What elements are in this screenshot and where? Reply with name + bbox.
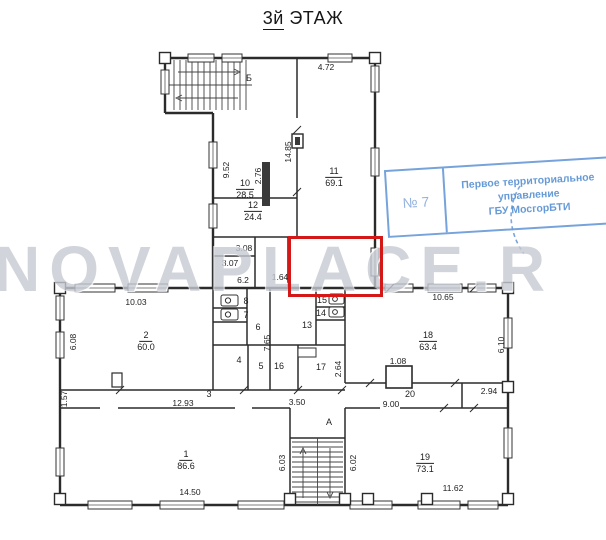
room-label-11: 1169.1: [325, 162, 343, 188]
bti-stamp: № 7 Первое территориальное управление ГБ…: [384, 156, 606, 238]
room-num: 12: [244, 201, 262, 212]
dimension-label: 1.57: [59, 391, 69, 408]
stamp-text: Первое территориальное управление ГБУ Мо…: [444, 158, 606, 232]
dimension-label: 9.52: [221, 162, 231, 179]
room-number-16: 16: [274, 361, 284, 371]
room-num: 10: [236, 179, 254, 190]
room-label-12: 1224.4: [244, 196, 262, 222]
room-area: 86.6: [177, 462, 195, 471]
dimension-label: 6.08: [68, 334, 78, 351]
floor-number: 3й: [263, 8, 284, 30]
stamp-number: № 7: [386, 168, 448, 235]
dimension-label: 11.62: [443, 483, 464, 493]
dimension-label: 2.64: [333, 361, 343, 378]
room-number-А: А: [326, 417, 332, 427]
room-area: 69.1: [325, 179, 343, 188]
room-label-2: 260.0: [137, 326, 155, 352]
room-area: 63.4: [419, 343, 437, 352]
room-num: 11: [325, 167, 342, 178]
room-number-20: 20: [405, 389, 415, 399]
page-title: 3й ЭТАЖ: [0, 8, 606, 29]
room-number-14: 14: [316, 308, 326, 318]
room-label-18: 1863.4: [419, 326, 437, 352]
dimension-label: 9.00: [383, 399, 400, 409]
room-number-17: 17: [316, 362, 326, 372]
dimension-label: 2.76: [253, 168, 263, 185]
room-area: 60.0: [137, 343, 155, 352]
room-num: 1: [179, 450, 192, 461]
room-label-1: 186.6: [177, 445, 195, 471]
room-num: 2: [139, 331, 152, 342]
room-number-3: 3: [206, 389, 211, 399]
room-number-5: 5: [258, 361, 263, 371]
room-num: 18: [419, 331, 437, 342]
dimension-label: 6.03: [277, 455, 287, 472]
room-number-7: 7: [243, 310, 248, 320]
highlighted-room-box[interactable]: [288, 236, 383, 297]
room-number-Б: Б: [246, 73, 252, 83]
dimension-label: 4.72: [318, 62, 335, 72]
room-area: 73.1: [416, 465, 434, 474]
room-label-19: 1973.1: [416, 448, 434, 474]
room-num: 19: [416, 453, 434, 464]
dimension-label: 6.10: [496, 337, 506, 354]
room-number-4: 4: [236, 355, 241, 365]
dimension-label: 12.93: [172, 398, 193, 408]
room-area: 24.4: [244, 213, 262, 222]
dimension-label: 14.85: [283, 141, 293, 162]
dimension-label: 1.08: [390, 356, 407, 366]
dimension-label: 6.02: [348, 455, 358, 472]
dimension-label: 2.94: [481, 386, 498, 396]
room-number-6: 6: [255, 322, 260, 332]
room-number-13: 13: [302, 320, 312, 330]
dimension-label: 14.50: [179, 487, 200, 497]
floor-word: ЭТАЖ: [289, 8, 343, 28]
floorplan-page: 3й ЭТАЖ: [0, 0, 606, 540]
dimension-label: 7.65: [262, 335, 272, 352]
dimension-label: 3.50: [289, 397, 306, 407]
